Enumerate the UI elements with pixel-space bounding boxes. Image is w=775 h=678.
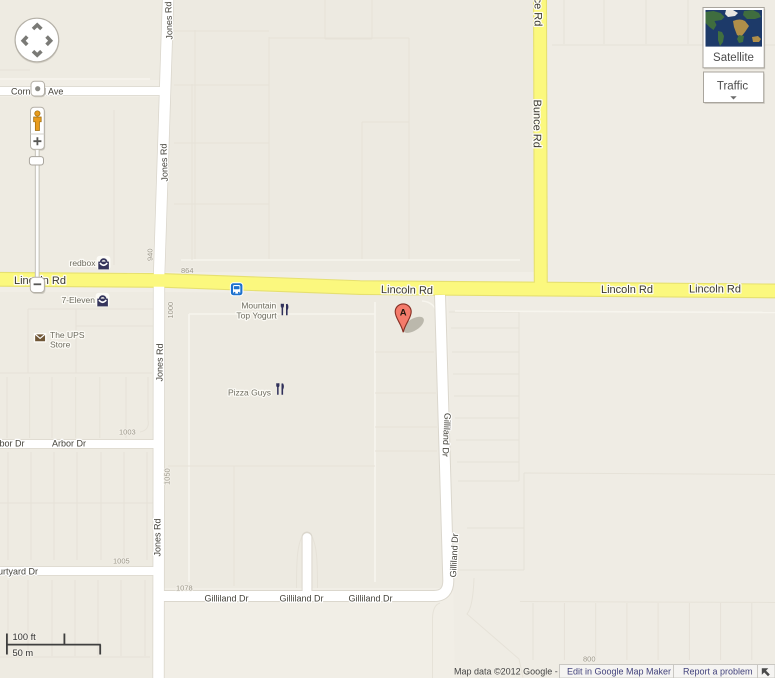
svg-text:Arbor Dr: Arbor Dr <box>52 439 86 449</box>
svg-text:Mountain: Mountain <box>241 301 276 311</box>
svg-text:Bunce Rd: Bunce Rd <box>531 99 543 147</box>
svg-text:Arbor Dr: Arbor Dr <box>0 439 25 449</box>
svg-text:redbox: redbox <box>70 258 97 268</box>
svg-text:Jones Rd: Jones Rd <box>163 1 174 39</box>
svg-text:Lincoln Rd: Lincoln Rd <box>689 284 741 296</box>
svg-text:1050: 1050 <box>163 468 172 485</box>
svg-text:Gilliland Dr: Gilliland Dr <box>205 594 249 604</box>
svg-text:7-Eleven: 7-Eleven <box>61 295 95 305</box>
svg-text:The UPS: The UPS <box>50 330 85 340</box>
svg-text:Traffic: Traffic <box>717 81 749 93</box>
svg-text:Courtyard Dr: Courtyard Dr <box>0 567 38 577</box>
svg-text:Gilliland Dr: Gilliland Dr <box>349 594 393 604</box>
svg-text:1003: 1003 <box>119 428 136 437</box>
svg-text:50 m: 50 m <box>13 648 34 658</box>
svg-text:864: 864 <box>181 266 194 275</box>
svg-text:Pizza Guys: Pizza Guys <box>228 388 271 398</box>
svg-text:1005: 1005 <box>113 557 130 566</box>
svg-text:Jones Rd: Jones Rd <box>153 518 163 556</box>
svg-text:1000: 1000 <box>166 302 175 319</box>
svg-text:Edit in Google Map Maker: Edit in Google Map Maker <box>567 667 671 677</box>
svg-text:Lincoln Rd: Lincoln Rd <box>601 284 653 296</box>
svg-text:Gilliland Dr: Gilliland Dr <box>280 594 324 604</box>
svg-text:Satellite: Satellite <box>713 52 754 64</box>
svg-text:Store: Store <box>50 340 71 350</box>
svg-text:Top Yogurt: Top Yogurt <box>236 311 277 321</box>
svg-text:1078: 1078 <box>176 584 193 593</box>
svg-text:100 ft: 100 ft <box>13 632 37 642</box>
svg-text:Bunce Rd: Bunce Rd <box>532 0 544 26</box>
svg-text:Map data ©2012 Google -: Map data ©2012 Google - <box>454 667 558 677</box>
svg-text:Report a problem: Report a problem <box>683 667 753 677</box>
svg-text:800: 800 <box>583 655 596 664</box>
svg-text:Lincoln Rd: Lincoln Rd <box>381 284 433 297</box>
svg-text:Jones Rd: Jones Rd <box>158 143 169 181</box>
svg-text:Jones Rd: Jones Rd <box>155 343 165 381</box>
svg-text:A: A <box>400 307 407 318</box>
svg-text:940: 940 <box>146 248 155 261</box>
